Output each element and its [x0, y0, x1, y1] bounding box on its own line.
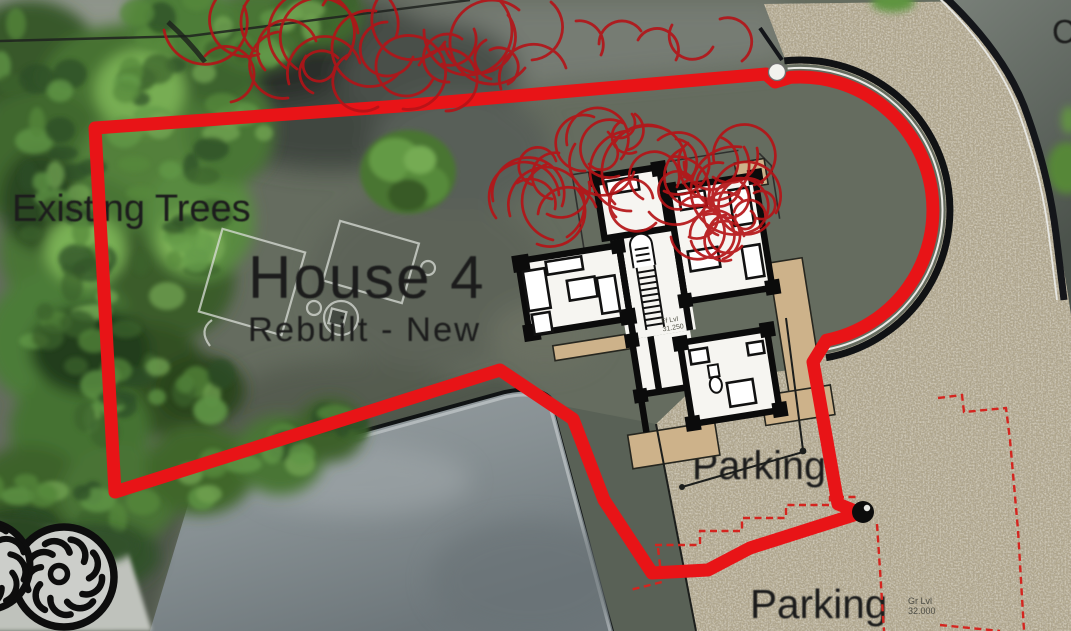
svg-text:House 4: House 4: [248, 244, 485, 311]
svg-text:Rebuilt - New: Rebuilt - New: [248, 311, 481, 349]
svg-text:Parking: Parking: [750, 581, 887, 627]
svg-text:32.000: 32.000: [908, 606, 936, 616]
svg-text:Gr Lvl: Gr Lvl: [908, 596, 932, 606]
svg-text:C: C: [1052, 13, 1071, 50]
svg-text:Existing Trees: Existing Trees: [12, 188, 251, 230]
